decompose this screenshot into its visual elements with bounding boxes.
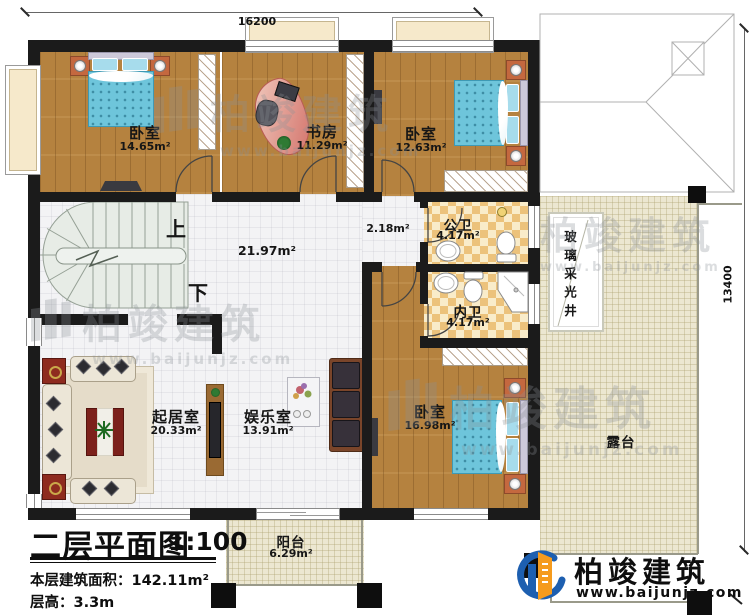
- column: [211, 583, 236, 608]
- living-area-label: 20.33m²: [136, 424, 216, 437]
- pillow: [506, 116, 519, 144]
- wall: [212, 192, 300, 202]
- brand-logo-icon: [516, 548, 566, 604]
- floor-area-line: 本层建筑面积：142.11m²: [30, 569, 209, 590]
- dimension-right-label: 13400: [722, 257, 735, 313]
- wall: [28, 346, 40, 494]
- wall: [40, 314, 128, 325]
- floor-plan: 16200 13400 上 下: [0, 0, 750, 615]
- closet: [198, 54, 216, 150]
- cushion: [332, 362, 360, 389]
- wall: [40, 192, 176, 202]
- pillow: [122, 58, 148, 71]
- hallway2-area-label: 2.18m²: [358, 222, 418, 235]
- railing: [697, 203, 742, 205]
- title-underline-thin: [30, 562, 216, 563]
- window: [528, 206, 540, 248]
- bed-headboard: [520, 80, 528, 146]
- railing: [361, 518, 363, 586]
- wall: [420, 242, 428, 304]
- floor-area-value: 142.11m²: [132, 573, 209, 589]
- wall: [362, 262, 372, 514]
- wall: [364, 52, 374, 202]
- column: [688, 186, 706, 203]
- window: [528, 284, 540, 324]
- window: [76, 508, 190, 520]
- tv: [374, 90, 382, 124]
- wall: [414, 192, 540, 202]
- public-bath-area-label: 4.17m²: [428, 229, 488, 242]
- stairs-down-label: 下: [178, 277, 218, 306]
- terrace-name-label: 露台: [591, 431, 651, 451]
- wall: [28, 40, 250, 52]
- stairs-up-label: 上: [156, 213, 196, 242]
- bed-headboard: [520, 400, 528, 474]
- tv: [100, 181, 142, 191]
- bed: [454, 80, 504, 146]
- window: [26, 318, 42, 346]
- wall: [28, 170, 40, 318]
- scale-label: 1:100: [168, 527, 248, 556]
- table-runner: [97, 408, 113, 456]
- wall: [528, 40, 540, 206]
- nightstand: [504, 378, 526, 398]
- nightstand: [506, 146, 526, 166]
- wall: [28, 508, 76, 520]
- wall: [374, 192, 382, 202]
- cushion: [332, 391, 360, 418]
- lightwell-label: 玻璃采光井: [560, 226, 579, 326]
- sliding-door: [256, 508, 340, 520]
- wall: [333, 40, 395, 52]
- floor-height-label: 层高：: [30, 595, 74, 611]
- sofa: [70, 478, 136, 504]
- railing: [697, 203, 699, 554]
- wall: [528, 324, 540, 520]
- closet: [442, 346, 528, 366]
- railing: [227, 584, 363, 586]
- bay-window: [6, 66, 40, 174]
- brand-website: www.baijunjz.com: [576, 585, 743, 601]
- window: [393, 40, 493, 52]
- window: [26, 494, 42, 508]
- railing: [550, 601, 688, 603]
- nightstand: [506, 60, 526, 80]
- cabinet: [42, 358, 66, 384]
- bedroom1-area-label: 14.65m²: [105, 140, 185, 153]
- roof: [540, 14, 734, 192]
- wall: [362, 262, 382, 272]
- floor-height-line: 层高：3.3m: [30, 591, 114, 612]
- window: [414, 508, 488, 520]
- pillow: [506, 438, 519, 472]
- private-bath-area-label: 4.17m²: [438, 316, 498, 329]
- pillow: [506, 402, 519, 436]
- wall: [190, 508, 256, 520]
- dimension-line-top: [25, 12, 480, 13]
- nightstand: [70, 56, 90, 76]
- cabinet: [42, 474, 66, 500]
- wall: [340, 508, 414, 520]
- wall: [212, 314, 222, 354]
- entertainment-area-label: 13.91m²: [230, 424, 306, 437]
- nightstand: [504, 474, 526, 494]
- pillow: [92, 58, 118, 71]
- balcony-area-label: 6.29m²: [261, 547, 321, 560]
- floor-height-value: 3.3m: [74, 595, 115, 611]
- hall-area-label: 21.97m²: [227, 243, 307, 258]
- title-underline: [30, 557, 216, 560]
- column: [357, 583, 382, 608]
- wall: [420, 264, 532, 272]
- closet: [444, 170, 528, 192]
- floor-area-label: 本层建筑面积：: [30, 573, 132, 589]
- wall: [420, 338, 534, 348]
- cushion: [332, 420, 360, 447]
- window: [246, 40, 338, 52]
- plant: [211, 388, 220, 397]
- study-area-label: 11.29m²: [282, 139, 362, 152]
- dimension-top-label: 16200: [200, 15, 314, 28]
- wall: [420, 196, 428, 208]
- master-bedroom-area-label: 16.98m²: [387, 419, 473, 432]
- dimension-line-right: [744, 28, 745, 552]
- bedroom2-area-label: 12.63m²: [381, 141, 461, 154]
